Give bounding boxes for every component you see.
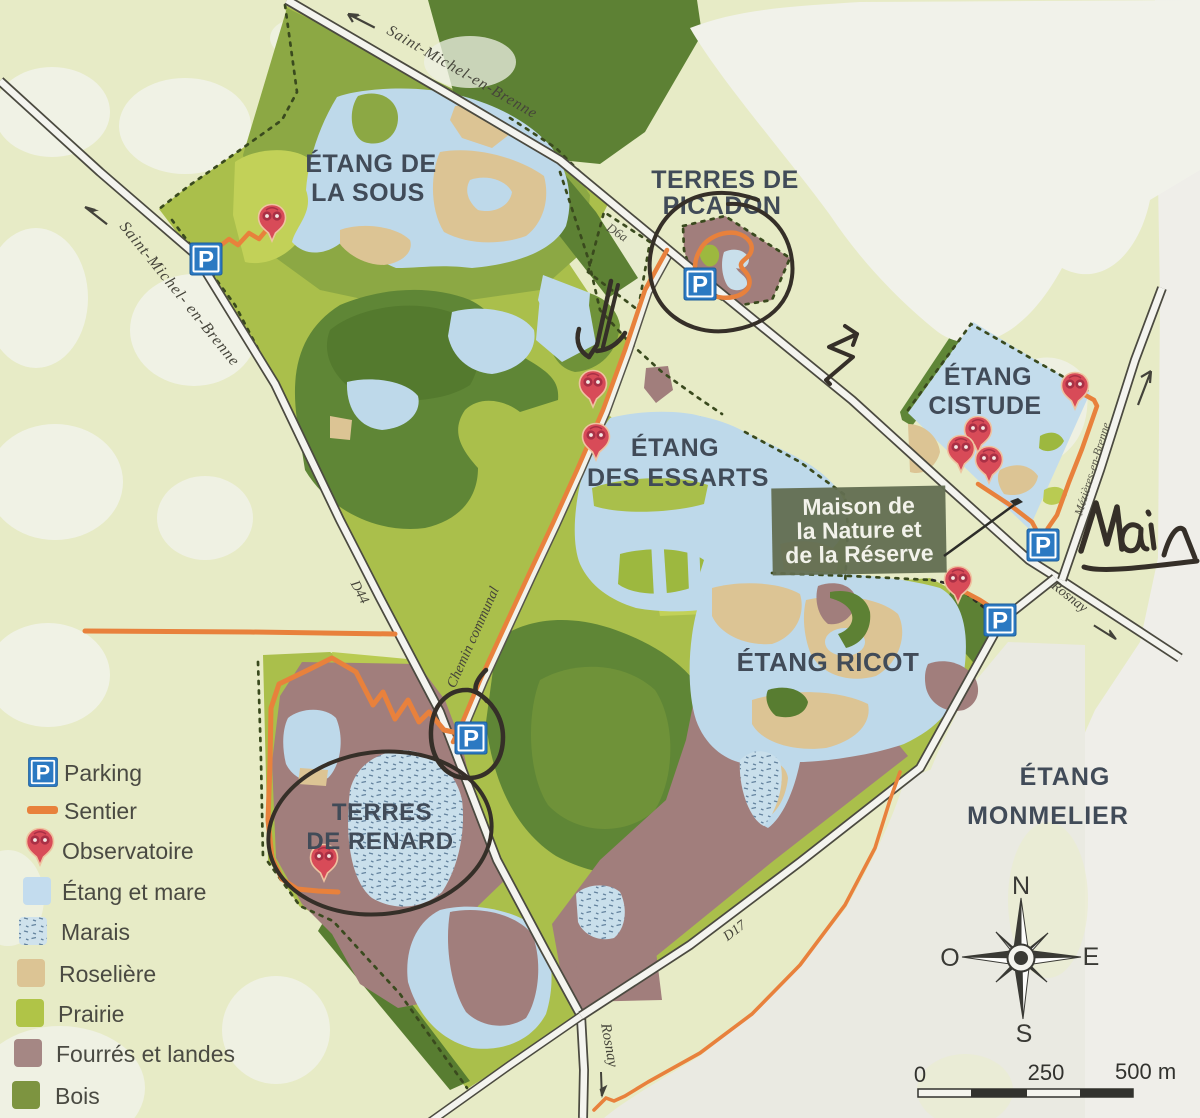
svg-text:LA SOUS: LA SOUS bbox=[311, 179, 425, 207]
svg-text:Marais: Marais bbox=[61, 919, 130, 945]
svg-text:MONMELIER: MONMELIER bbox=[967, 802, 1129, 830]
svg-text:ÉTANG RICOT: ÉTANG RICOT bbox=[737, 647, 920, 677]
svg-text:O: O bbox=[940, 944, 959, 972]
svg-text:250: 250 bbox=[1028, 1060, 1065, 1085]
svg-text:Étang et mare: Étang et mare bbox=[62, 879, 206, 905]
svg-text:ÉTANG: ÉTANG bbox=[944, 362, 1032, 391]
svg-text:ÉTANG DE: ÉTANG DE bbox=[305, 149, 436, 178]
svg-text:de la Réserve: de la Réserve bbox=[785, 540, 934, 569]
svg-text:CISTUDE: CISTUDE bbox=[928, 392, 1041, 420]
svg-text:N: N bbox=[1012, 872, 1030, 900]
svg-text:E: E bbox=[1083, 943, 1100, 971]
svg-text:ÉTANG: ÉTANG bbox=[631, 433, 719, 462]
svg-text:Observatoire: Observatoire bbox=[62, 838, 194, 864]
svg-text:TERRES: TERRES bbox=[332, 799, 432, 826]
svg-text:Parking: Parking bbox=[64, 760, 142, 786]
svg-text:Roselière: Roselière bbox=[59, 961, 156, 987]
svg-text:DE RENARD: DE RENARD bbox=[306, 828, 453, 855]
svg-text:Fourrés et landes: Fourrés et landes bbox=[56, 1041, 235, 1067]
svg-text:0: 0 bbox=[914, 1062, 926, 1087]
svg-text:DES ESSARTS: DES ESSARTS bbox=[587, 464, 769, 492]
svg-text:TERRES DE: TERRES DE bbox=[651, 166, 799, 194]
svg-text:Prairie: Prairie bbox=[58, 1001, 124, 1027]
svg-text:Sentier: Sentier bbox=[64, 798, 137, 824]
svg-text:ÉTANG: ÉTANG bbox=[1020, 762, 1111, 791]
svg-text:500 m: 500 m bbox=[1115, 1059, 1176, 1084]
svg-text:S: S bbox=[1016, 1020, 1033, 1048]
svg-text:Bois: Bois bbox=[55, 1083, 100, 1109]
